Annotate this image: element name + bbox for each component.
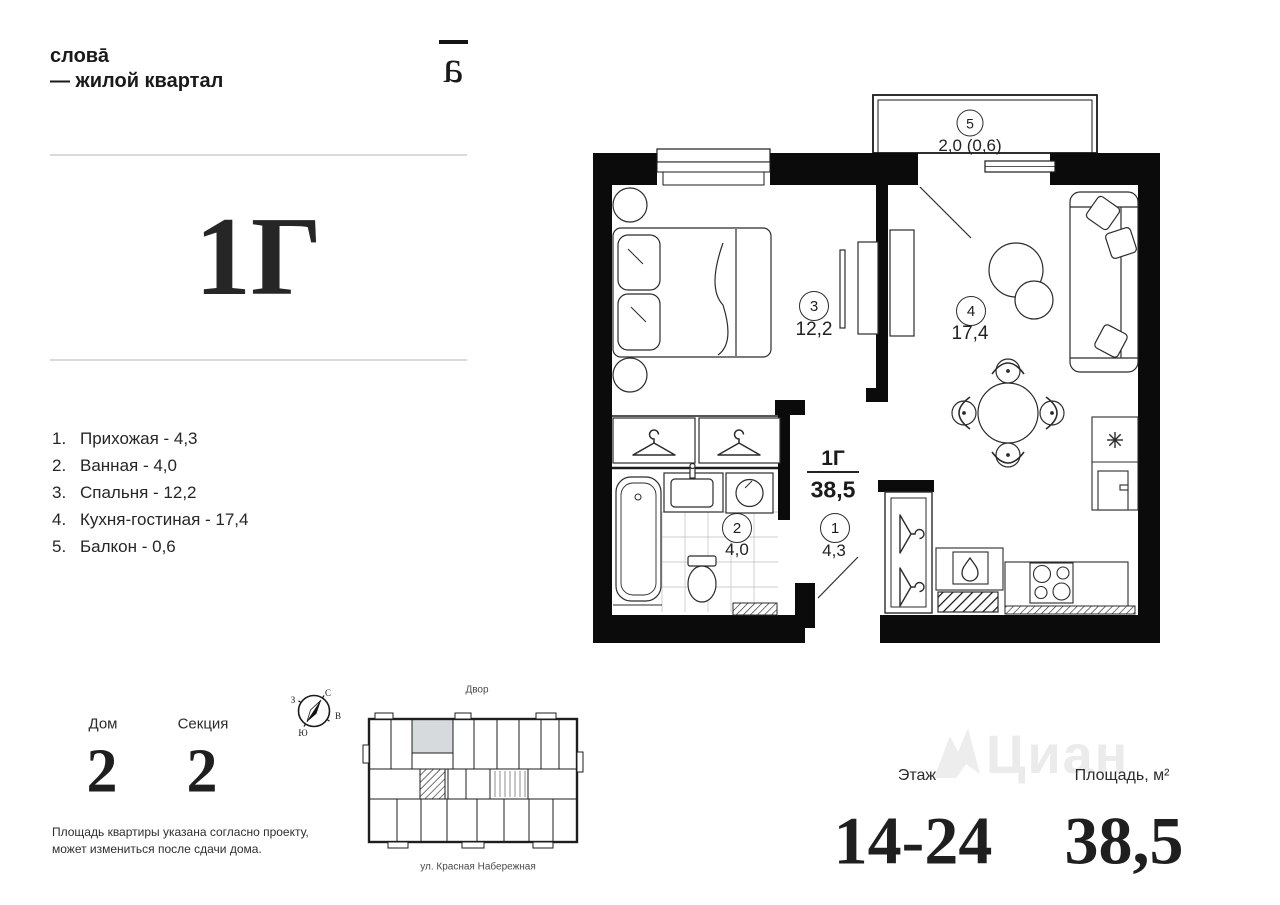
house-label: Дом [89, 716, 118, 733]
section-value: 2 [187, 737, 218, 808]
floorplan-page: { "brand": { "name_line1": "слова̄", "na… [0, 0, 1280, 905]
room-area-bathroom: 4,0 [725, 540, 749, 560]
compass-east-label: В [335, 711, 341, 721]
disclaimer: Площадь квартиры указана согласно проект… [52, 824, 309, 858]
bathroom-fixtures [613, 464, 778, 616]
brand-mark-icon: a [436, 40, 470, 89]
sink-icon [1107, 432, 1123, 448]
stove-icon [1030, 563, 1073, 603]
compass-labels: С В Ю З [291, 688, 341, 738]
plan-total-area: 38,5 [811, 477, 856, 504]
site-core-1 [420, 769, 445, 799]
divider-top [50, 154, 467, 156]
brand-mark-glyph: a [443, 45, 463, 89]
site-plan-street-label: ул. Красная Набережная [420, 862, 536, 873]
list-item-label: Прихожая - 4,3 [80, 430, 198, 447]
tile-grid [662, 512, 778, 612]
list-item-label: Спальня - 12,2 [80, 484, 197, 501]
list-item-label: Кухня-гостиная - 17,4 [80, 511, 248, 528]
list-item: 4.Кухня-гостиная - 17,4 [52, 511, 248, 528]
list-item: 3.Спальня - 12,2 [52, 484, 248, 501]
house-value: 2 [87, 737, 118, 808]
cian-bird-icon [928, 720, 986, 786]
compass-needle-icon [307, 700, 324, 724]
list-item: 2.Ванная - 4,0 [52, 457, 248, 474]
section-label: Секция [178, 716, 229, 733]
list-item: 5.Балкон - 0,6 [52, 538, 248, 555]
plan-type-label: 1Г [821, 447, 845, 471]
room-list: 1.Прихожая - 4,3 2.Ванная - 4,0 3.Спальн… [52, 430, 248, 565]
bedroom-window [657, 149, 770, 185]
partitions [612, 416, 778, 468]
room-badge-balcony: 5 [957, 110, 984, 137]
site-plan-yard-label: Двор [465, 685, 488, 696]
floor-plan [593, 95, 1160, 643]
bath-vent-hatch [733, 603, 777, 615]
hall-wardrobe [885, 492, 932, 613]
area-value: 38,5 [1065, 802, 1184, 881]
plan-fraction-line [807, 471, 859, 473]
bedroom-furniture [613, 188, 914, 392]
list-item-label: Балкон - 0,6 [80, 538, 176, 555]
boiler-flame-icon [962, 558, 978, 581]
list-item-label: Ванная - 4,0 [80, 457, 177, 474]
balcony-window [985, 161, 1055, 172]
site-plan-highlighted-unit [412, 719, 453, 753]
brand-tagline: — жилой квартал [50, 69, 223, 94]
site-core-2 [490, 769, 528, 799]
room-area-balcony: 2,0 (0,6) [938, 136, 1001, 156]
brand-logo: слова̄ — жилой квартал [50, 44, 223, 94]
list-item: 1.Прихожая - 4,3 [52, 430, 248, 447]
divider-bottom [50, 359, 467, 361]
entrance-door-swing [818, 557, 858, 598]
floor-value: 14-24 [834, 802, 993, 881]
room-badge-hall: 1 [820, 513, 850, 543]
compass-west-label: З [291, 695, 296, 705]
kitchen-units [936, 417, 1138, 614]
floor-label: Этаж [898, 767, 936, 785]
brand-name: слова̄ [50, 44, 223, 69]
shaft-hatch [938, 592, 998, 612]
area-label: Площадь, м² [1075, 767, 1170, 785]
compass-south-label: Ю [298, 728, 307, 738]
room-badge-bedroom: 3 [799, 291, 829, 321]
room-area-hall: 4,3 [822, 541, 846, 561]
room-badge-kitchen-living: 4 [956, 296, 986, 326]
apartment-type-title: 1Г [50, 192, 467, 322]
closets [613, 418, 780, 463]
site-plan [363, 713, 583, 848]
room-area-bedroom: 12,2 [796, 319, 833, 341]
compass-north-label: С [325, 688, 331, 698]
walls [593, 153, 1160, 643]
balcony-door-swing [920, 187, 971, 238]
room-area-kitchen-living: 17,4 [952, 323, 989, 345]
vent-strip-hatch [1005, 606, 1135, 614]
compass [288, 685, 339, 736]
room-badge-bathroom: 2 [722, 513, 752, 543]
